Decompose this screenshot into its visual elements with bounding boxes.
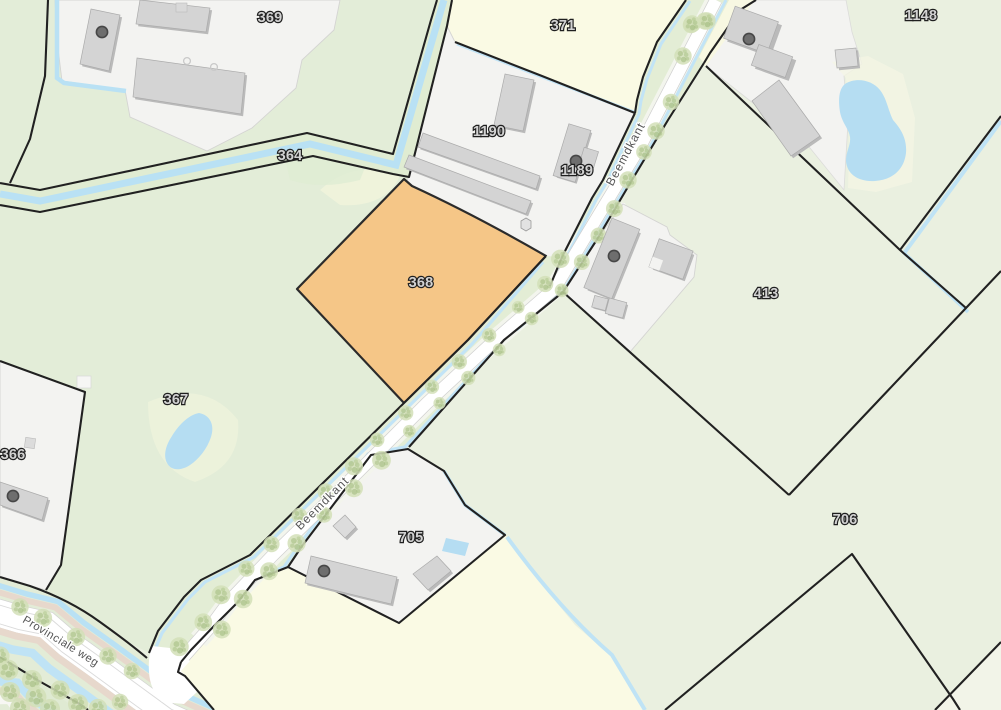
- svg-text:705: 705: [399, 530, 424, 546]
- svg-text:706: 706: [833, 512, 858, 528]
- svg-text:367: 367: [164, 392, 189, 408]
- svg-text:413: 413: [754, 286, 779, 302]
- svg-text:371: 371: [551, 18, 576, 34]
- svg-text:1148: 1148: [905, 8, 937, 24]
- svg-text:1189: 1189: [561, 163, 593, 179]
- svg-text:366: 366: [1, 447, 26, 463]
- svg-text:1190: 1190: [473, 124, 505, 140]
- svg-text:369: 369: [258, 10, 283, 26]
- svg-text:368: 368: [409, 275, 434, 291]
- svg-text:364: 364: [278, 148, 303, 164]
